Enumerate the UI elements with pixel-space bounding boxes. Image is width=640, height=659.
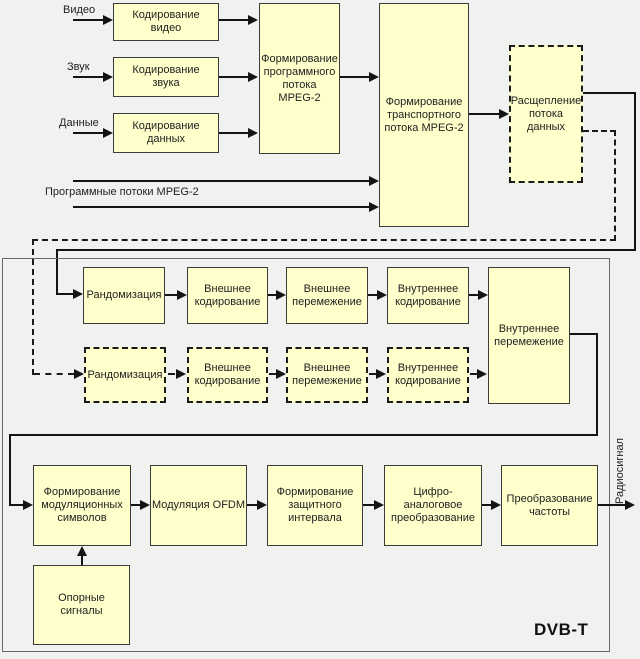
dvbt-transmitter-diagram: Видео Звук Данные Кодирование видео Коди… — [0, 0, 640, 659]
arrowhead — [499, 109, 509, 119]
arrowhead — [248, 128, 258, 138]
connector-line — [131, 504, 140, 506]
arrowhead — [491, 500, 501, 510]
block-reference-signals: Опорные сигналы — [33, 565, 130, 645]
connector-line-dashed — [32, 239, 616, 241]
arrowhead — [369, 202, 379, 212]
connector-line-dashed — [470, 373, 477, 375]
connector-line — [598, 504, 625, 506]
arrowhead — [478, 290, 488, 300]
connector-line-dashed — [369, 373, 376, 375]
connector-line — [596, 333, 598, 436]
arrowhead — [248, 15, 258, 25]
input-label-video: Видео — [63, 4, 95, 16]
block-outer-interleaving-alt: Внешнее перемежение — [286, 347, 368, 403]
arrowhead — [140, 500, 150, 510]
connector-line — [73, 206, 369, 208]
connector-line — [634, 92, 636, 251]
connector-line — [9, 434, 598, 436]
connector-line-dashed — [269, 373, 276, 375]
input-label-data: Данные — [59, 117, 99, 129]
standard-label: DVB-T — [534, 620, 588, 640]
block-dac: Цифро-аналоговое преобразование — [384, 465, 482, 546]
connector-line — [9, 504, 23, 506]
arrowhead — [103, 128, 113, 138]
connector-line — [219, 132, 249, 134]
arrowhead — [23, 500, 33, 510]
connector-line — [56, 249, 636, 251]
block-randomization-alt: Рандомизация — [84, 347, 166, 403]
block-inner-coding-main: Внутреннее кодирование — [387, 267, 469, 324]
block-ofdm-modulation: Модуляция OFDM — [150, 465, 247, 546]
arrowhead — [176, 369, 186, 379]
arrowhead — [103, 15, 113, 25]
connector-line — [73, 132, 104, 134]
block-frequency-conversion: Преобразование частоты — [501, 465, 598, 546]
block-outer-coding-alt: Внешнее кодирование — [187, 347, 268, 403]
block-guard-interval: Формирование защитного интервала — [267, 465, 363, 546]
arrowhead — [369, 176, 379, 186]
connector-line — [583, 92, 636, 94]
arrowhead — [77, 546, 87, 556]
connector-line — [9, 434, 11, 506]
block-inner-interleaving: Внутреннее перемежение — [488, 267, 570, 404]
input-label-audio: Звук — [67, 61, 90, 73]
connector-line-dashed — [168, 373, 175, 375]
block-symbol-mapping: Формирование модуляционных символов — [33, 465, 131, 546]
arrowhead — [103, 72, 113, 82]
block-encode-data: Кодирование данных — [113, 113, 219, 153]
block-encode-audio: Кодирование звука — [113, 57, 219, 97]
connector-line — [73, 19, 104, 21]
block-inner-coding-alt: Внутреннее кодирование — [387, 347, 469, 403]
rf-output-label: Радиосигнал — [614, 430, 626, 504]
connector-line — [340, 76, 369, 78]
connector-line — [73, 76, 104, 78]
connector-line — [469, 113, 499, 115]
connector-line — [570, 333, 598, 335]
arrowhead — [374, 500, 384, 510]
block-outer-interleaving-main: Внешнее перемежение — [286, 267, 368, 324]
arrowhead — [248, 72, 258, 82]
arrowhead — [625, 500, 635, 510]
connector-line-dashed — [614, 130, 616, 241]
connector-line — [482, 504, 491, 506]
block-randomization-main: Рандомизация — [83, 267, 165, 324]
block-program-stream: Формирование программного потока MPEG-2 — [259, 3, 340, 154]
connector-line-dashed — [583, 130, 616, 132]
connector-line — [219, 19, 249, 21]
arrowhead — [377, 290, 387, 300]
arrowhead — [177, 290, 187, 300]
arrowhead — [376, 369, 386, 379]
connector-line — [247, 504, 257, 506]
block-outer-coding-main: Внешнее кодирование — [187, 267, 268, 324]
arrowhead — [257, 500, 267, 510]
program-streams-label: Программные потоки MPEG-2 — [45, 186, 199, 198]
block-encode-video: Кодирование видео — [113, 3, 219, 41]
block-transport-stream: Формирование транспортного потока MPEG-2 — [379, 3, 469, 227]
arrowhead — [276, 369, 286, 379]
connector-line — [73, 180, 369, 182]
arrowhead — [477, 369, 487, 379]
block-stream-split: Расщепление потока данных — [509, 45, 583, 183]
arrowhead — [369, 72, 379, 82]
connector-line — [219, 76, 249, 78]
connector-line — [363, 504, 374, 506]
arrowhead — [276, 290, 286, 300]
